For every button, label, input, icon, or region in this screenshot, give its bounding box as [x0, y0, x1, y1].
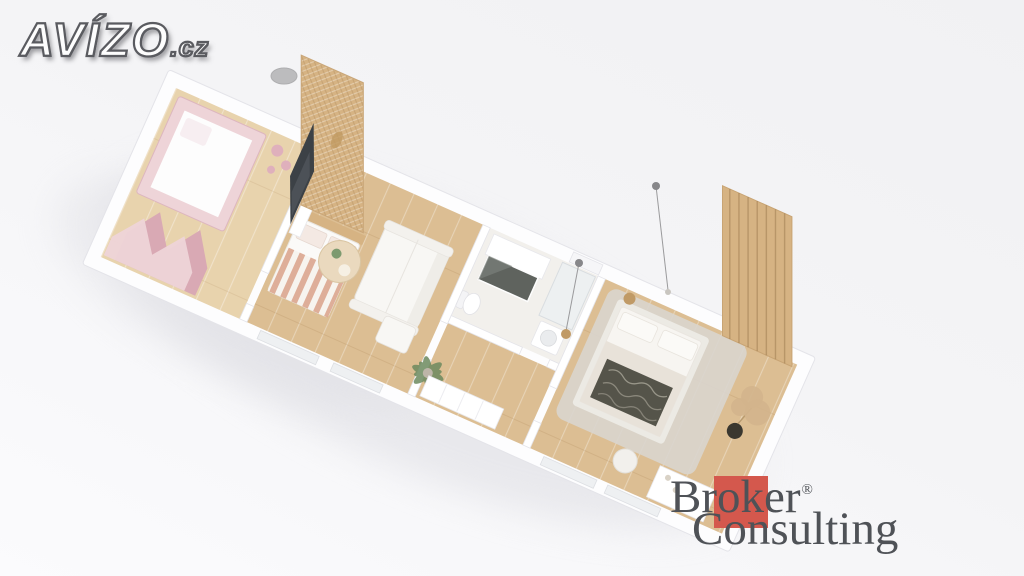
registered-mark: ® — [802, 482, 813, 498]
pendant-light — [652, 182, 671, 295]
broker-line2: Consulting — [692, 506, 920, 553]
wood-bead — [561, 329, 571, 339]
avizo-watermark: AVÍZO.cz — [20, 12, 209, 67]
gray-ottoman — [271, 68, 297, 84]
broker-consulting-logo: Broker® Consulting — [670, 474, 920, 560]
avizo-suffix: .cz — [170, 32, 209, 62]
avizo-text: AVÍZO — [20, 13, 170, 66]
real-estate-render: AVÍZO.cz Broker® Consulting — [0, 0, 1024, 576]
